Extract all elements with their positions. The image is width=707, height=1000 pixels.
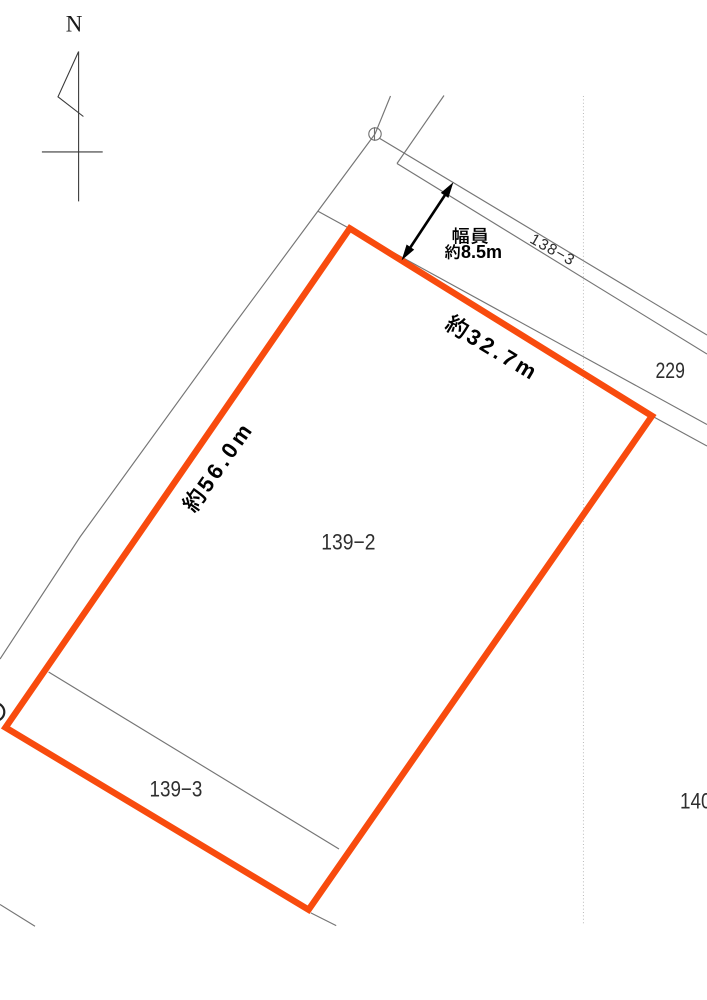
svg-text:140: 140	[680, 789, 707, 814]
svg-text:138−3: 138−3	[527, 231, 578, 270]
svg-text:139−2: 139−2	[321, 530, 375, 555]
svg-text:32.7m: 32.7m	[462, 323, 544, 386]
svg-text:8.5m: 8.5m	[461, 242, 502, 262]
svg-text:N: N	[66, 12, 83, 37]
svg-text:139−3: 139−3	[150, 777, 203, 802]
svg-text:56.0m: 56.0m	[192, 416, 259, 496]
svg-text:229: 229	[656, 358, 685, 383]
